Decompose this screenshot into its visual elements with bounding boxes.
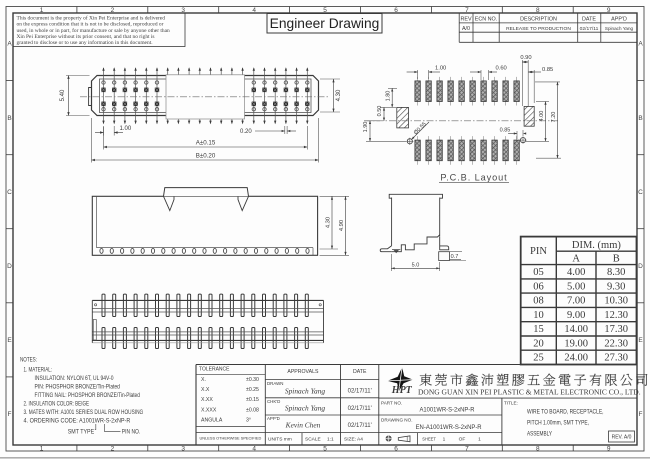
svg-text:X.X: X.X bbox=[201, 387, 210, 393]
svg-text:REV. A/0: REV. A/0 bbox=[612, 435, 632, 441]
svg-text:PART NO.: PART NO. bbox=[381, 401, 402, 406]
svg-text:ASSEMBLY: ASSEMBLY bbox=[527, 431, 552, 438]
svg-text:F: F bbox=[8, 411, 12, 418]
svg-text:DRAWN: DRAWN bbox=[267, 381, 283, 386]
svg-text:D: D bbox=[638, 263, 643, 270]
svg-text:A: A bbox=[638, 41, 643, 48]
svg-text:02/17/11': 02/17/11' bbox=[348, 423, 372, 429]
svg-text:PITCH 1.00mm, SMT TYPE,: PITCH 1.00mm, SMT TYPE, bbox=[527, 420, 589, 427]
svg-text:05: 05 bbox=[533, 267, 544, 278]
svg-text:1.90: 1.90 bbox=[363, 122, 369, 133]
svg-text:4.30: 4.30 bbox=[325, 217, 331, 228]
svg-text:CHK'D: CHK'D bbox=[267, 399, 280, 404]
svg-text:08: 08 bbox=[533, 296, 544, 307]
svg-text:A: A bbox=[7, 41, 12, 48]
svg-text:1. MATERIAL:: 1. MATERIAL: bbox=[24, 367, 53, 374]
svg-text:8.30: 8.30 bbox=[607, 267, 625, 278]
svg-text:5.40: 5.40 bbox=[60, 89, 66, 101]
svg-text:This document is the property: This document is the property of Xin Pei… bbox=[17, 15, 166, 22]
svg-text:4.90: 4.90 bbox=[339, 220, 345, 231]
svg-text:Xin Pei Enterprise without its: Xin Pei Enterprise without its prior con… bbox=[17, 34, 155, 40]
svg-text:20: 20 bbox=[533, 339, 544, 350]
svg-text:Kevin Chen: Kevin Chen bbox=[285, 421, 321, 430]
svg-text:1: 1 bbox=[443, 437, 446, 443]
svg-text:UNLESS OTHERWISE SPECIFIED: UNLESS OTHERWISE SPECIFIED bbox=[200, 436, 262, 441]
svg-text:APPROVALS: APPROVALS bbox=[287, 369, 319, 375]
svg-text:APP'D: APP'D bbox=[267, 416, 280, 421]
svg-text:D: D bbox=[7, 263, 12, 270]
svg-text:0.85: 0.85 bbox=[500, 128, 511, 134]
svg-text:A1001WR-S-2xNP-R: A1001WR-S-2xNP-R bbox=[420, 407, 475, 414]
svg-text:1: 1 bbox=[478, 437, 481, 443]
svg-text:7: 7 bbox=[465, 445, 469, 452]
svg-text:8: 8 bbox=[536, 7, 540, 14]
svg-text:SIZE: A4: SIZE: A4 bbox=[344, 437, 363, 443]
svg-text:10: 10 bbox=[533, 310, 544, 321]
svg-text:14.00: 14.00 bbox=[564, 324, 588, 335]
svg-text:PIN: PHOSPHOR BRONZE/Tin-Plate: PIN: PHOSPHOR BRONZE/Tin-Plated bbox=[35, 384, 120, 391]
svg-text:19.00: 19.00 bbox=[564, 339, 588, 350]
svg-text:Spinach Yang: Spinach Yang bbox=[285, 404, 325, 413]
svg-text:granted to disclose or to use: granted to disclose or to use any inform… bbox=[17, 39, 153, 46]
svg-text:SHEET: SHEET bbox=[422, 437, 436, 443]
svg-text:B±0.20: B±0.20 bbox=[196, 153, 216, 160]
svg-text:2: 2 bbox=[111, 445, 115, 452]
svg-text:24.00: 24.00 bbox=[564, 353, 588, 364]
svg-text:A±0.15: A±0.15 bbox=[196, 140, 216, 147]
svg-text:E: E bbox=[7, 337, 12, 344]
svg-text:B: B bbox=[7, 115, 11, 122]
svg-text:used, in whole or in part, for: used, in whole or in part, for manufactu… bbox=[17, 27, 171, 34]
svg-text:9.00: 9.00 bbox=[567, 310, 585, 321]
svg-text:6: 6 bbox=[394, 7, 398, 14]
svg-text:PIN NO.: PIN NO. bbox=[122, 429, 141, 436]
svg-text:HPT: HPT bbox=[391, 385, 413, 396]
svg-text:OF: OF bbox=[459, 437, 466, 443]
svg-text:DATE: DATE bbox=[353, 369, 367, 375]
svg-text:Engineer Drawing: Engineer Drawing bbox=[270, 16, 380, 31]
svg-text:0.60: 0.60 bbox=[496, 66, 507, 72]
svg-text:WIRE TO BOARD, RECEPTACLE,: WIRE TO BOARD, RECEPTACLE, bbox=[527, 409, 604, 416]
svg-text:X.XXX: X.XXX bbox=[201, 407, 217, 413]
svg-text:C: C bbox=[7, 189, 12, 196]
svg-text:SCALE: SCALE bbox=[305, 437, 321, 443]
svg-text:7: 7 bbox=[465, 7, 469, 14]
svg-text:9.30: 9.30 bbox=[607, 281, 625, 292]
svg-text:E: E bbox=[638, 337, 643, 344]
svg-text:06: 06 bbox=[533, 281, 544, 292]
svg-text:1.80: 1.80 bbox=[385, 91, 391, 102]
svg-text:3°: 3° bbox=[246, 417, 251, 423]
svg-text:TOLERANCE: TOLERANCE bbox=[199, 367, 230, 373]
svg-text:REV: REV bbox=[460, 17, 471, 23]
svg-text:B: B bbox=[613, 254, 620, 265]
svg-text:ANGULA: ANGULA bbox=[201, 417, 223, 423]
svg-text:SMT TYPE: SMT TYPE bbox=[68, 429, 95, 436]
svg-text:9: 9 bbox=[607, 445, 611, 452]
svg-text:DATE: DATE bbox=[582, 17, 596, 23]
svg-text:UNITS mm: UNITS mm bbox=[268, 437, 292, 443]
svg-text:on the express condition that: on the express condition that it is not … bbox=[17, 22, 164, 28]
svg-text:F: F bbox=[639, 411, 643, 418]
svg-text:P.C.B. Layout: P.C.B. Layout bbox=[440, 172, 507, 182]
svg-text:0.20: 0.20 bbox=[240, 129, 252, 135]
svg-text:4: 4 bbox=[252, 7, 256, 14]
svg-text:±0.15: ±0.15 bbox=[246, 397, 259, 403]
svg-text:5: 5 bbox=[323, 445, 327, 452]
svg-text:Spinach Yang: Spinach Yang bbox=[605, 26, 634, 31]
svg-text:RELEASE TO PRODUCTION: RELEASE TO PRODUCTION bbox=[506, 26, 571, 32]
svg-text:DONG GUAN XIN PEI PLASTIC & ME: DONG GUAN XIN PEI PLASTIC & METAL ELECTR… bbox=[418, 387, 641, 396]
svg-text:7.20: 7.20 bbox=[551, 112, 557, 123]
svg-text:FITTING NAIL: PHOSPHOR BRONZE/: FITTING NAIL: PHOSPHOR BRONZE/Tin-Plated bbox=[35, 392, 140, 399]
svg-text:X.: X. bbox=[201, 377, 206, 383]
svg-text:PIN: PIN bbox=[530, 246, 547, 257]
svg-text:±0.30: ±0.30 bbox=[246, 377, 259, 383]
svg-text:9: 9 bbox=[607, 7, 611, 14]
svg-text:17.30: 17.30 bbox=[604, 324, 628, 335]
svg-text:5: 5 bbox=[323, 7, 327, 14]
svg-text:0.50: 0.50 bbox=[377, 106, 383, 117]
svg-text:02/17/11: 02/17/11 bbox=[580, 26, 599, 32]
svg-text:APP'D: APP'D bbox=[611, 17, 627, 23]
svg-text:12.30: 12.30 bbox=[604, 310, 628, 321]
svg-text:DRAWING NO.: DRAWING NO. bbox=[381, 418, 412, 423]
svg-text:0.90: 0.90 bbox=[520, 55, 531, 61]
svg-text:EN-A1001WR-S-2xNP-R: EN-A1001WR-S-2xNP-R bbox=[416, 424, 482, 431]
svg-text:±0.25: ±0.25 bbox=[246, 387, 259, 393]
svg-text:A: A bbox=[572, 254, 580, 265]
svg-text:A/0: A/0 bbox=[462, 26, 470, 32]
svg-text:DESCRIPTION: DESCRIPTION bbox=[520, 17, 557, 23]
svg-text:02/17/11': 02/17/11' bbox=[348, 406, 372, 412]
svg-text:B: B bbox=[638, 115, 642, 122]
svg-text:7.00: 7.00 bbox=[567, 296, 585, 307]
svg-text:5.0: 5.0 bbox=[412, 262, 420, 268]
svg-text:22.30: 22.30 bbox=[604, 339, 628, 350]
svg-text:6: 6 bbox=[394, 445, 398, 452]
svg-text:3: 3 bbox=[181, 445, 185, 452]
svg-text:02/17/11': 02/17/11' bbox=[348, 389, 372, 395]
svg-text:4. ORDERING CODE: A1001WR-S-2x: 4. ORDERING CODE: A1001WR-S-2xNP-R bbox=[24, 418, 131, 425]
svg-text:1: 1 bbox=[40, 445, 44, 452]
svg-text:8: 8 bbox=[536, 445, 540, 452]
svg-text:25: 25 bbox=[533, 353, 544, 364]
svg-text:4.00: 4.00 bbox=[567, 267, 585, 278]
svg-text:4.00: 4.00 bbox=[539, 111, 545, 122]
svg-text:27.30: 27.30 bbox=[604, 353, 628, 364]
svg-text:X.XX: X.XX bbox=[201, 397, 213, 403]
svg-text:NOTES:: NOTES: bbox=[20, 357, 37, 364]
svg-text:1.00: 1.00 bbox=[435, 66, 446, 72]
svg-text:4: 4 bbox=[252, 445, 256, 452]
svg-text:TITLE:: TITLE: bbox=[504, 401, 518, 406]
svg-text:4.30: 4.30 bbox=[336, 89, 342, 101]
svg-text:DIM. (mm): DIM. (mm) bbox=[572, 240, 621, 251]
svg-text:INSULATION: NYLON 6T, UL 94V-0: INSULATION: NYLON 6T, UL 94V-0 bbox=[35, 375, 114, 382]
svg-text:15: 15 bbox=[533, 324, 544, 335]
svg-text:±0.08: ±0.08 bbox=[246, 407, 259, 413]
svg-text:1.00: 1.00 bbox=[120, 126, 132, 132]
svg-text:10.30: 10.30 bbox=[604, 296, 628, 307]
svg-text:5.00: 5.00 bbox=[567, 281, 585, 292]
svg-text:Spinach Yang: Spinach Yang bbox=[285, 387, 325, 396]
svg-text:0.85: 0.85 bbox=[542, 67, 553, 73]
svg-text:2. INSULATION COLOR: BEIGE: 2. INSULATION COLOR: BEIGE bbox=[24, 401, 90, 408]
svg-text:ECN NO.: ECN NO. bbox=[475, 17, 497, 23]
svg-text:1:1: 1:1 bbox=[327, 437, 334, 443]
svg-text:C: C bbox=[638, 189, 643, 196]
svg-text:0.7: 0.7 bbox=[451, 254, 459, 260]
svg-text:3. MATES WITH: A1001 SERIES DU: 3. MATES WITH: A1001 SERIES DUAL ROW HOU… bbox=[24, 409, 144, 416]
